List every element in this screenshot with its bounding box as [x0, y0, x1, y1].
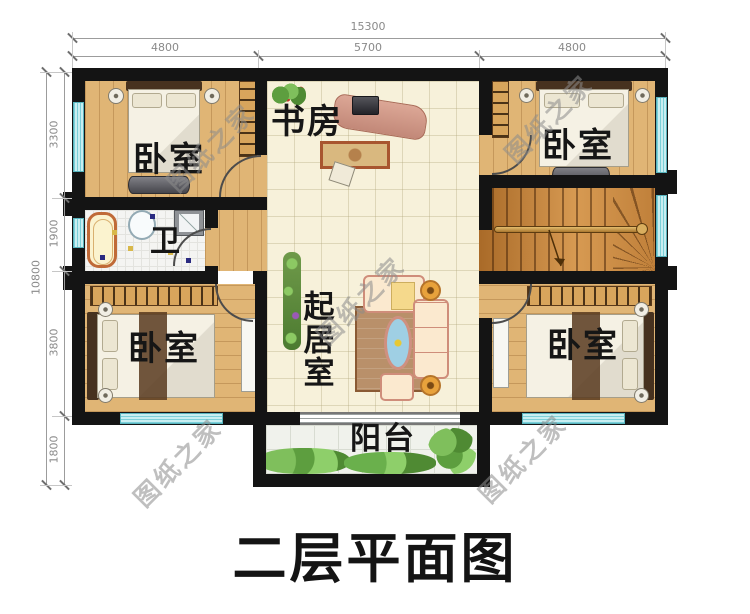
side-table [420, 280, 441, 301]
wall [479, 271, 668, 284]
dim-left-seg-4: 1800 [48, 420, 61, 480]
wall [479, 318, 492, 425]
window [656, 97, 667, 173]
room-label-bathroom: 卫 [150, 226, 182, 258]
dim-extension [665, 32, 666, 68]
dim-left-seg-3: 3800 [48, 313, 61, 373]
side-table [420, 375, 441, 396]
dim-extension [52, 198, 72, 199]
wall-pad [668, 266, 677, 290]
dim-extension [40, 485, 72, 486]
dim-left-total: 10800 [30, 248, 43, 308]
nightstand [98, 388, 113, 403]
wall [253, 474, 490, 487]
dim-top-seg-1: 4800 [135, 41, 195, 54]
balcony-plants [428, 428, 476, 474]
wall [205, 266, 218, 284]
dim-line [72, 38, 665, 39]
nightstand [635, 88, 650, 103]
mirror-dresser [493, 318, 509, 388]
wardrobe [492, 81, 509, 138]
dim-top-seg-3: 4800 [542, 41, 602, 54]
ottoman [380, 373, 414, 401]
accent-tile [112, 230, 117, 235]
dim-left-seg-1: 3300 [48, 105, 61, 165]
nightstand [519, 88, 534, 103]
dim-extension [52, 271, 72, 272]
staircase [479, 188, 655, 271]
nightstand [98, 302, 113, 317]
wall-pad [668, 170, 677, 194]
dim-extension [72, 32, 73, 68]
room-label-balcony: 阳台 [350, 423, 416, 456]
wall [479, 188, 492, 230]
room-label-bedroom-bottom-right: 卧室 [547, 329, 619, 365]
handrail-knob [636, 223, 648, 235]
page-title: 二层平面图 [0, 514, 750, 593]
accent-tile [100, 255, 105, 260]
coffee-table [384, 316, 412, 370]
nightstand [108, 88, 124, 104]
sofa [413, 299, 449, 379]
dim-extension [40, 72, 72, 73]
study-rug [320, 141, 390, 169]
wall [72, 197, 267, 210]
dim-extension [258, 50, 259, 68]
dim-line [72, 56, 665, 57]
window [73, 218, 84, 248]
computer [352, 96, 379, 115]
wall [253, 425, 266, 487]
dim-extension [52, 416, 72, 417]
dim-line [64, 72, 65, 485]
room-label-study: 书房 [271, 105, 343, 141]
watermark: 图纸之家 [125, 410, 230, 515]
wardrobe [527, 286, 652, 306]
window [73, 102, 84, 172]
floor-plan: 卧室 书房 卧室 卫 起居室 卧室 卧室 阳台 图纸之家 图纸之家 图纸之家 图… [0, 0, 750, 614]
dim-extension [479, 50, 480, 68]
wall [255, 68, 267, 155]
nightstand [634, 302, 649, 317]
wall [479, 68, 492, 135]
wall [72, 271, 217, 284]
nightstand [634, 388, 649, 403]
accent-tile [150, 214, 155, 219]
dim-left-seg-2: 1900 [48, 204, 61, 264]
room-label-bedroom-bottom-left: 卧室 [128, 332, 200, 368]
dim-top-total: 15300 [338, 20, 398, 33]
window [656, 195, 667, 257]
wall [205, 210, 218, 228]
stair-direction-arrow [541, 228, 575, 270]
balcony-plants [258, 448, 350, 474]
nightstand [204, 88, 220, 104]
wall [253, 271, 267, 284]
wall [255, 284, 267, 425]
accent-tile [128, 246, 133, 251]
wall [479, 175, 668, 188]
dim-top-seg-2: 5700 [338, 41, 398, 54]
